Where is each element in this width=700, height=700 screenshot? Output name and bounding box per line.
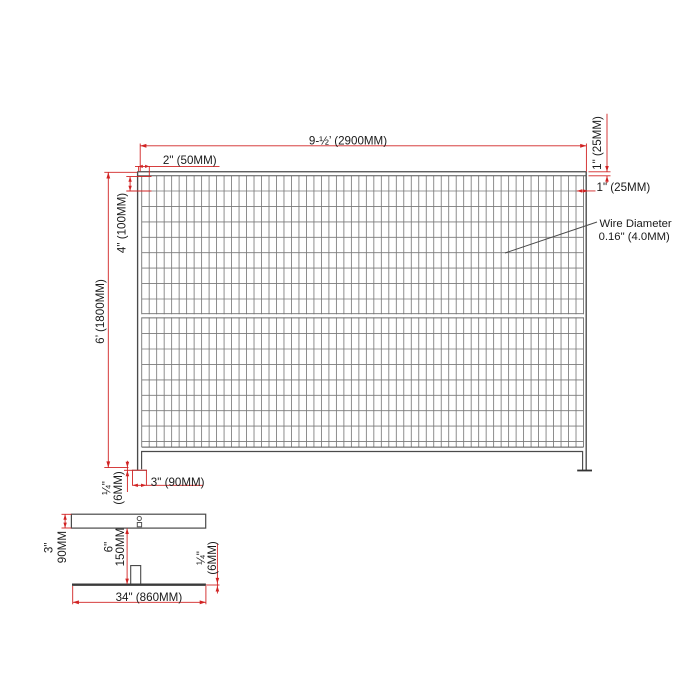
svg-text:1" (25MM): 1" (25MM) [597, 181, 651, 194]
svg-text:4" (100MM): 4" (100MM) [115, 193, 128, 253]
svg-text:0.16" (4.0MM): 0.16" (4.0MM) [599, 231, 670, 243]
svg-text:1" (25MM): 1" (25MM) [591, 116, 604, 170]
svg-text:(6MM): (6MM) [112, 471, 125, 505]
svg-text:34" (860MM): 34" (860MM) [116, 591, 183, 604]
svg-text:6’ (1800MM): 6’ (1800MM) [94, 279, 107, 344]
svg-text:3" (90MM): 3" (90MM) [151, 476, 205, 489]
svg-text:90MM: 90MM [56, 531, 69, 563]
svg-text:3": 3" [42, 543, 55, 554]
svg-text:150MM: 150MM [114, 528, 127, 567]
svg-text:(6MM): (6MM) [206, 541, 219, 575]
svg-text:9-½’ (2900MM): 9-½’ (2900MM) [309, 135, 387, 148]
svg-text:2" (50MM): 2" (50MM) [163, 154, 217, 167]
svg-text:Wire Diameter: Wire Diameter [600, 218, 672, 230]
